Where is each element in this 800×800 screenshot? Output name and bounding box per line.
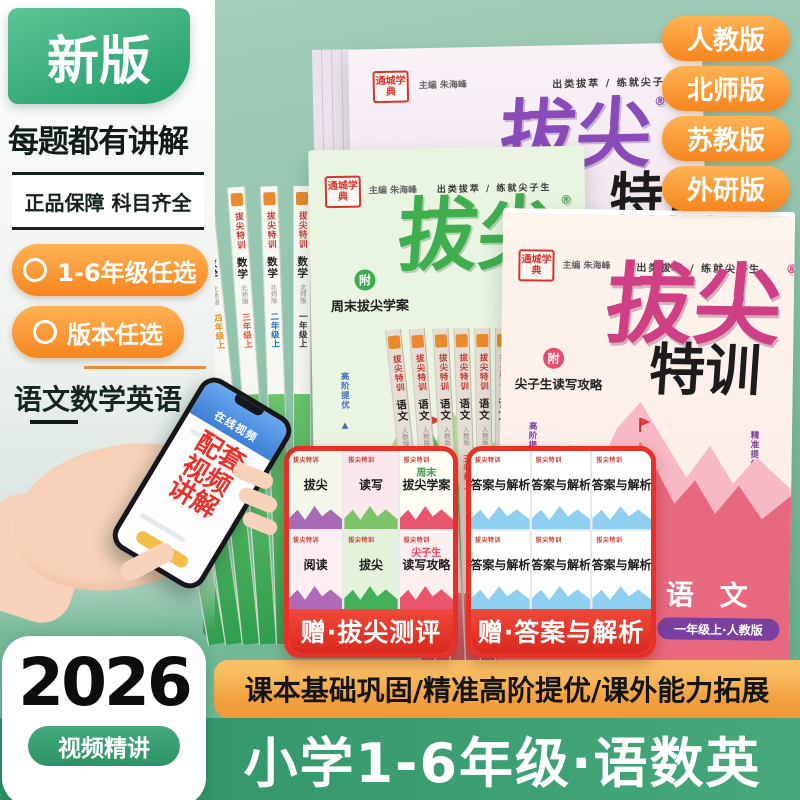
- version-pill-waiyan: 外研版: [662, 166, 790, 211]
- bonus-text: 尖子生读写攻略: [515, 373, 603, 393]
- subject-label: 语 文: [666, 573, 756, 614]
- selling-point-headline: 每题都有讲解: [8, 116, 213, 161]
- mini-cover: 拔尖特训 答案与解析: [532, 531, 591, 609]
- brand-logo: 通城学典: [372, 70, 409, 103]
- cover-title-main: 拔尖®: [601, 260, 795, 351]
- mini-cover: 拔尖特训 阅读: [289, 531, 342, 609]
- mini-cover: 拔尖特训 答案与解析: [592, 531, 651, 609]
- editor-credit: 主编 朱海峰: [419, 77, 467, 91]
- gift-band-label: 赠·答案与解析: [471, 609, 651, 653]
- grade-version-pill: 一年级上·人教版: [657, 617, 779, 641]
- features-bar: 课本基础巩固/精准高阶提优/课外能力拓展: [214, 660, 800, 718]
- bonus-text: 周末拔尖学案: [331, 295, 409, 315]
- mini-cover: 拔尖特训 拔尖: [344, 531, 397, 609]
- mini-cover: 拔尖特训 答案与解析: [592, 451, 651, 529]
- year-box: 2026 视频精讲: [2, 636, 206, 800]
- bonus-badge: 附: [354, 269, 375, 290]
- new-edition-badge: 新版: [8, 8, 190, 104]
- version-pill-renjiao: 人教版: [662, 16, 790, 61]
- gift-band-label: 赠·拔尖测评: [289, 609, 453, 653]
- version-select-pill: 版本任选: [12, 306, 184, 358]
- video-tag-pill: 视频精讲: [28, 726, 180, 766]
- grade-select-pill: 1-6年级任选: [12, 244, 208, 296]
- mini-cover: 拔尖特训 拔尖: [289, 451, 342, 529]
- cover-slogan: 出类拔萃 / 练就尖子生: [552, 73, 677, 91]
- product-promo-image: 通城学典 主编 朱海峰 出类拔萃 / 练就尖子生 拔尖® 特训 拔尖特训 数学 …: [0, 0, 800, 800]
- mini-cover: 拔尖特训 答案与解析: [532, 451, 591, 529]
- orange-divider: [84, 366, 206, 369]
- flag-icon: [639, 418, 641, 432]
- circle-icon: [33, 320, 57, 344]
- year-label: 2026: [18, 650, 190, 716]
- mini-cover: 拔尖特训 读写: [344, 451, 397, 529]
- cover-title-sub: 特训: [647, 343, 763, 401]
- guarantee-box: 正品保障 科目齐全: [12, 172, 204, 230]
- mini-cover: 拔尖特训 答案与解析: [471, 531, 530, 609]
- circle-icon: [23, 258, 47, 282]
- bonus-badge: 附: [543, 348, 564, 369]
- version-pill-beishi: 北师版: [662, 66, 790, 111]
- mini-cover: 拔尖特训 周末 拔尖学案: [400, 451, 453, 529]
- mini-cover: 拔尖特训 尖子生 读写攻略: [400, 531, 453, 609]
- bottom-headline: 小学1-6年级·语数英: [205, 716, 800, 800]
- version-pill-sujiao: 苏教版: [662, 116, 790, 161]
- mini-cover: 拔尖特训 答案与解析: [471, 451, 530, 529]
- gift-box-answers: 拔尖特训 答案与解析 拔尖特训 答案与解析 拔尖特训 答案与解析 拔尖特训 答案…: [466, 446, 656, 658]
- underline: [30, 420, 78, 424]
- side-note: 高阶提优 ▲: [338, 372, 351, 432]
- gift-box-assessment: 拔尖特训 拔尖 拔尖特训 读写 拔尖特训 周末 拔尖学案 拔尖特训 阅读: [284, 446, 458, 658]
